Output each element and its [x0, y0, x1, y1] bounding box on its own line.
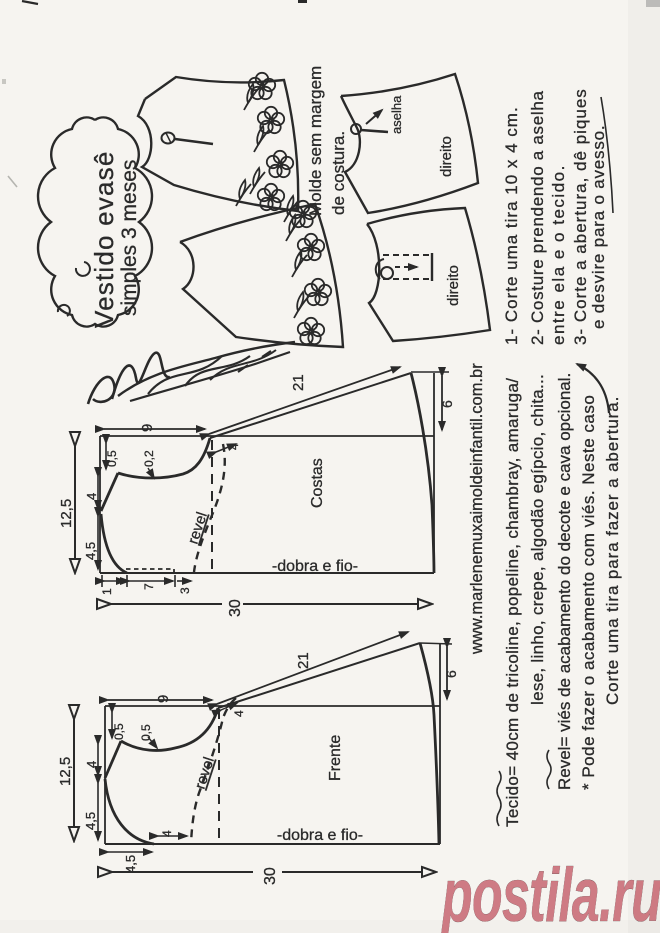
svg-text:4: 4 — [84, 493, 99, 500]
svg-text:4: 4 — [232, 710, 246, 717]
svg-text:2- Costure prendendo a aselha: 2- Costure prendendo a aselha — [528, 90, 547, 345]
svg-text:3- Corte a abertura, dê piques: 3- Corte a abertura, dê piques — [571, 88, 590, 345]
svg-text:1- Corte uma tira 10 x 4 cm.: 1- Corte uma tira 10 x 4 cm. — [502, 106, 521, 345]
svg-text:Corte uma tira para fazer a ab: Corte uma tira para fazer a abertura. — [603, 396, 622, 705]
svg-text:0,5: 0,5 — [112, 723, 126, 740]
svg-text:4: 4 — [160, 830, 174, 837]
svg-text:12,5: 12,5 — [58, 499, 75, 528]
svg-text:0,2: 0,2 — [142, 450, 156, 467]
svg-text:Vestido evasê: Vestido evasê — [89, 151, 119, 329]
svg-text:direito: direito — [445, 265, 462, 306]
svg-text:Tecido= 40cm de tricoline, pop: Tecido= 40cm de tricoline, popeline, cha… — [503, 378, 522, 827]
svg-text:7: 7 — [142, 583, 156, 590]
svg-text:30: 30 — [262, 867, 279, 885]
svg-text:Costas: Costas — [309, 458, 326, 508]
svg-text:www.marlenemuxaimoldeinfantil.: www.marlenemuxaimoldeinfantil.com.br — [468, 363, 486, 655]
svg-text:-dobra e fio-: -dobra e fio- — [272, 558, 358, 575]
svg-text:9: 9 — [139, 424, 156, 432]
svg-text:4: 4 — [227, 443, 241, 450]
svg-text:4,5: 4,5 — [83, 542, 98, 560]
svg-text:entre ela e o tecido.: entre ela e o tecido. — [549, 164, 568, 345]
svg-text:6: 6 — [443, 670, 459, 678]
svg-text:e desvire para o avesso.: e desvire para o avesso. — [589, 125, 608, 329]
svg-text:21: 21 — [290, 374, 307, 391]
svg-text:9: 9 — [155, 695, 172, 703]
svg-text:direito: direito — [438, 136, 455, 177]
svg-text:1: 1 — [100, 588, 114, 595]
svg-text:postila.ru: postila.ru — [440, 853, 660, 933]
svg-text:0,5: 0,5 — [105, 450, 119, 467]
svg-text:4,5: 4,5 — [123, 855, 138, 873]
svg-text:30: 30 — [227, 599, 244, 617]
svg-text:6: 6 — [439, 400, 455, 408]
svg-text:3: 3 — [178, 587, 192, 594]
svg-text:de costura.: de costura. — [329, 131, 348, 215]
svg-text:4: 4 — [84, 761, 99, 768]
svg-text:0,5: 0,5 — [139, 724, 153, 741]
svg-text:12,5: 12,5 — [57, 757, 74, 786]
svg-text:-dobra e fio-: -dobra e fio- — [277, 827, 363, 844]
svg-text:* Pode fazer o acabamento com: * Pode fazer o acabamento com viés. Nest… — [579, 395, 598, 790]
svg-text:Revel= viés de acabamento do d: Revel= viés de acabamento do decote e ca… — [555, 373, 574, 790]
svg-text:simples 3 meses: simples 3 meses — [118, 160, 141, 316]
svg-text:aselha: aselha — [389, 95, 404, 134]
svg-text:Molde sem margem: Molde sem margem — [306, 66, 325, 216]
svg-text:lese, linho, crepe, algodão eg: lese, linho, crepe, algodão egípcio, chi… — [528, 374, 547, 705]
svg-text:4,5: 4,5 — [83, 812, 98, 830]
svg-text:Frente: Frente — [327, 735, 344, 781]
svg-text:21: 21 — [295, 652, 312, 669]
